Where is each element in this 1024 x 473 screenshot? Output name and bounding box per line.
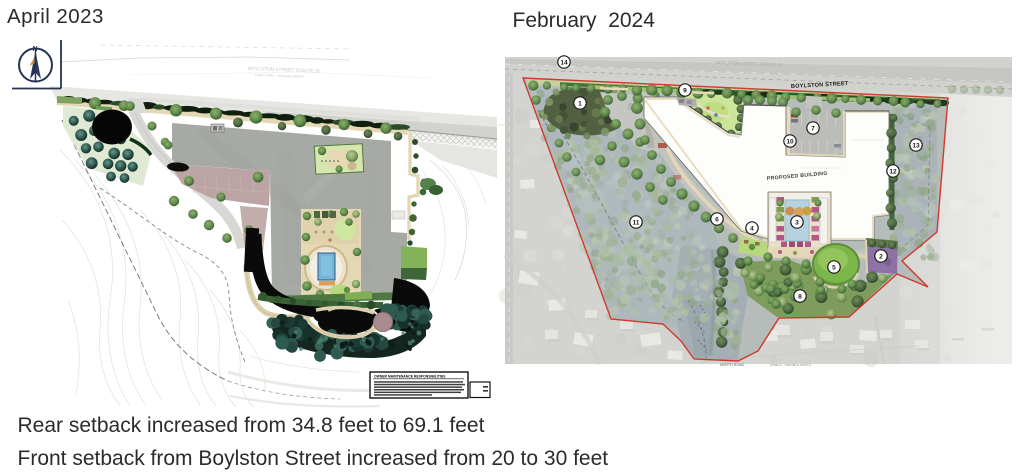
svg-text:8: 8	[798, 293, 802, 300]
svg-text:NORTH ROAD: NORTH ROAD	[720, 363, 744, 367]
svg-text:13: 13	[912, 142, 920, 149]
svg-text:6: 6	[715, 216, 719, 223]
svg-text:OWNER MAINTENANCE RESPONSIBILI: OWNER MAINTENANCE RESPONSIBILITIES	[374, 375, 446, 379]
svg-text:3: 3	[795, 219, 799, 226]
svg-text:1: 1	[578, 100, 582, 107]
svg-text:(PUBLIC - VARIABLE WIDTH): (PUBLIC - VARIABLE WIDTH)	[770, 363, 811, 367]
svg-text:7: 7	[811, 125, 815, 132]
svg-text:PUBLIC WAY - VARIABLE WIDTH: PUBLIC WAY - VARIABLE WIDTH	[255, 73, 305, 79]
svg-text:5: 5	[832, 264, 836, 271]
svg-text:4: 4	[750, 225, 754, 232]
svg-text:9: 9	[683, 87, 687, 94]
svg-text:12: 12	[889, 168, 897, 175]
svg-text:2: 2	[879, 253, 883, 260]
svg-text:14: 14	[560, 59, 568, 66]
svg-text:N: N	[33, 46, 38, 53]
svg-text:11: 11	[633, 219, 640, 226]
svg-text:10: 10	[786, 138, 794, 145]
